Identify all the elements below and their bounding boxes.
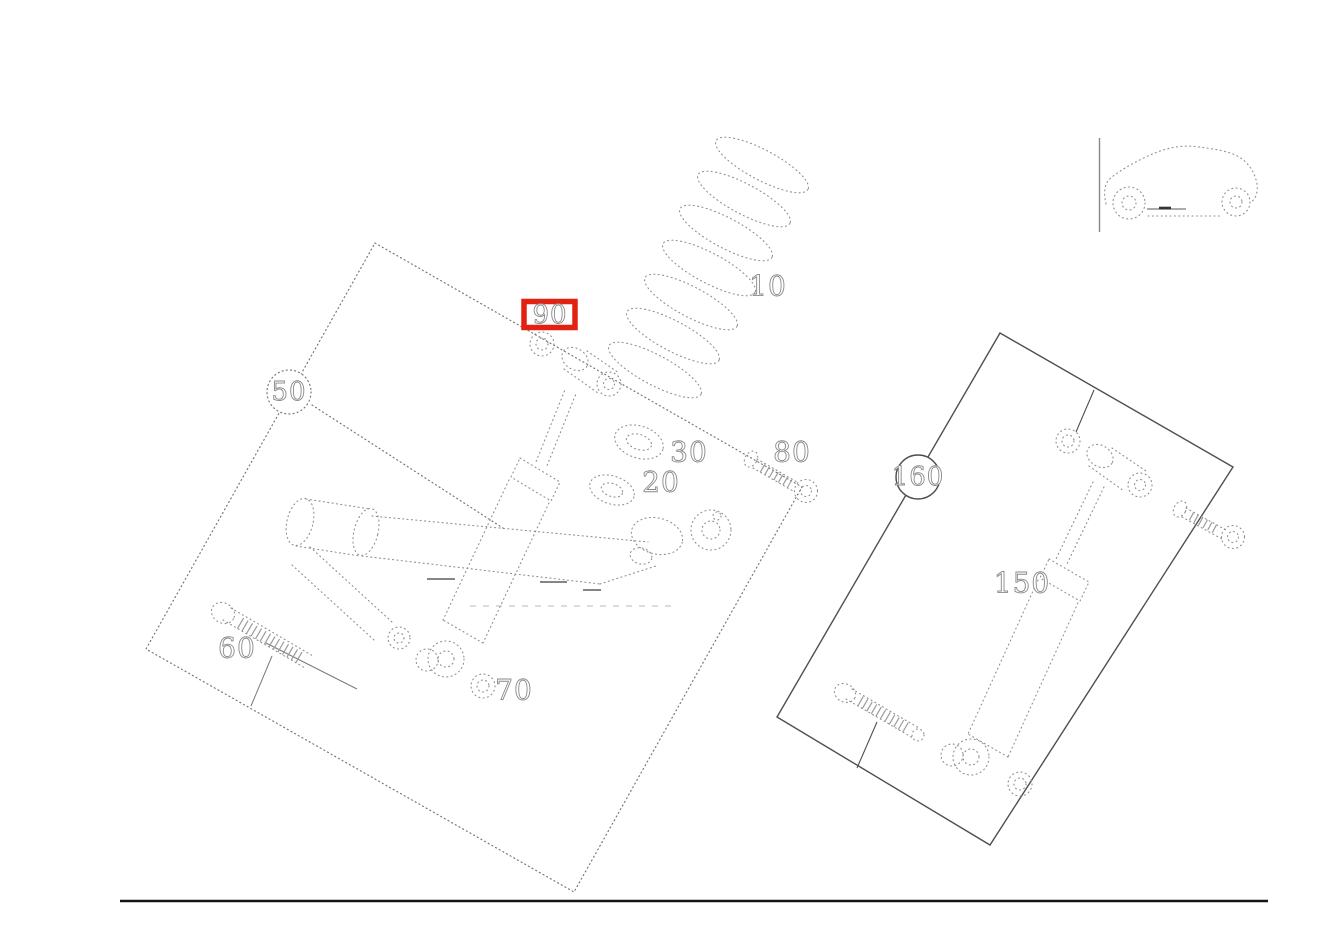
highlighted-callout-90[interactable]: 90 [524,300,575,330]
callout-50-circle[interactable]: 50 [267,370,311,414]
shock-absorber-right-drawing [941,429,1152,796]
car-side-outline-icon [1100,138,1258,232]
nut-90-drawing [530,332,554,356]
callout-80[interactable]: 80 [773,436,811,469]
axle-position-marker [1147,208,1186,209]
nut-70-drawing [471,674,495,698]
callout-160[interactable]: 160 [892,462,945,492]
trailing-arm-drawing [282,496,731,649]
callout-150[interactable]: 150 [994,567,1050,600]
callout-60[interactable]: 60 [218,632,256,665]
callout-20[interactable]: 20 [642,466,680,499]
callout-30[interactable]: 30 [670,436,708,469]
parts-diagram-canvas: 10 20 30 50 60 70 80 90 150 160 [0,0,1326,938]
coil-spring-drawing [602,127,815,407]
parts-diagram-page: 10 20 30 50 60 70 80 90 150 160 [0,0,1326,938]
bump-stop-30-drawing [610,419,667,465]
callout-10[interactable]: 10 [749,270,787,303]
callout-70[interactable]: 70 [495,674,533,707]
spring-pad-20-drawing [586,470,638,511]
callout-160-circle[interactable]: 160 [892,455,945,499]
shock-absorber-left-drawing [416,332,621,698]
panel-left-outline [146,243,802,892]
callout-50[interactable]: 50 [271,377,306,407]
callout-90[interactable]: 90 [532,300,567,330]
mounting-bolt-drawing [831,680,924,741]
